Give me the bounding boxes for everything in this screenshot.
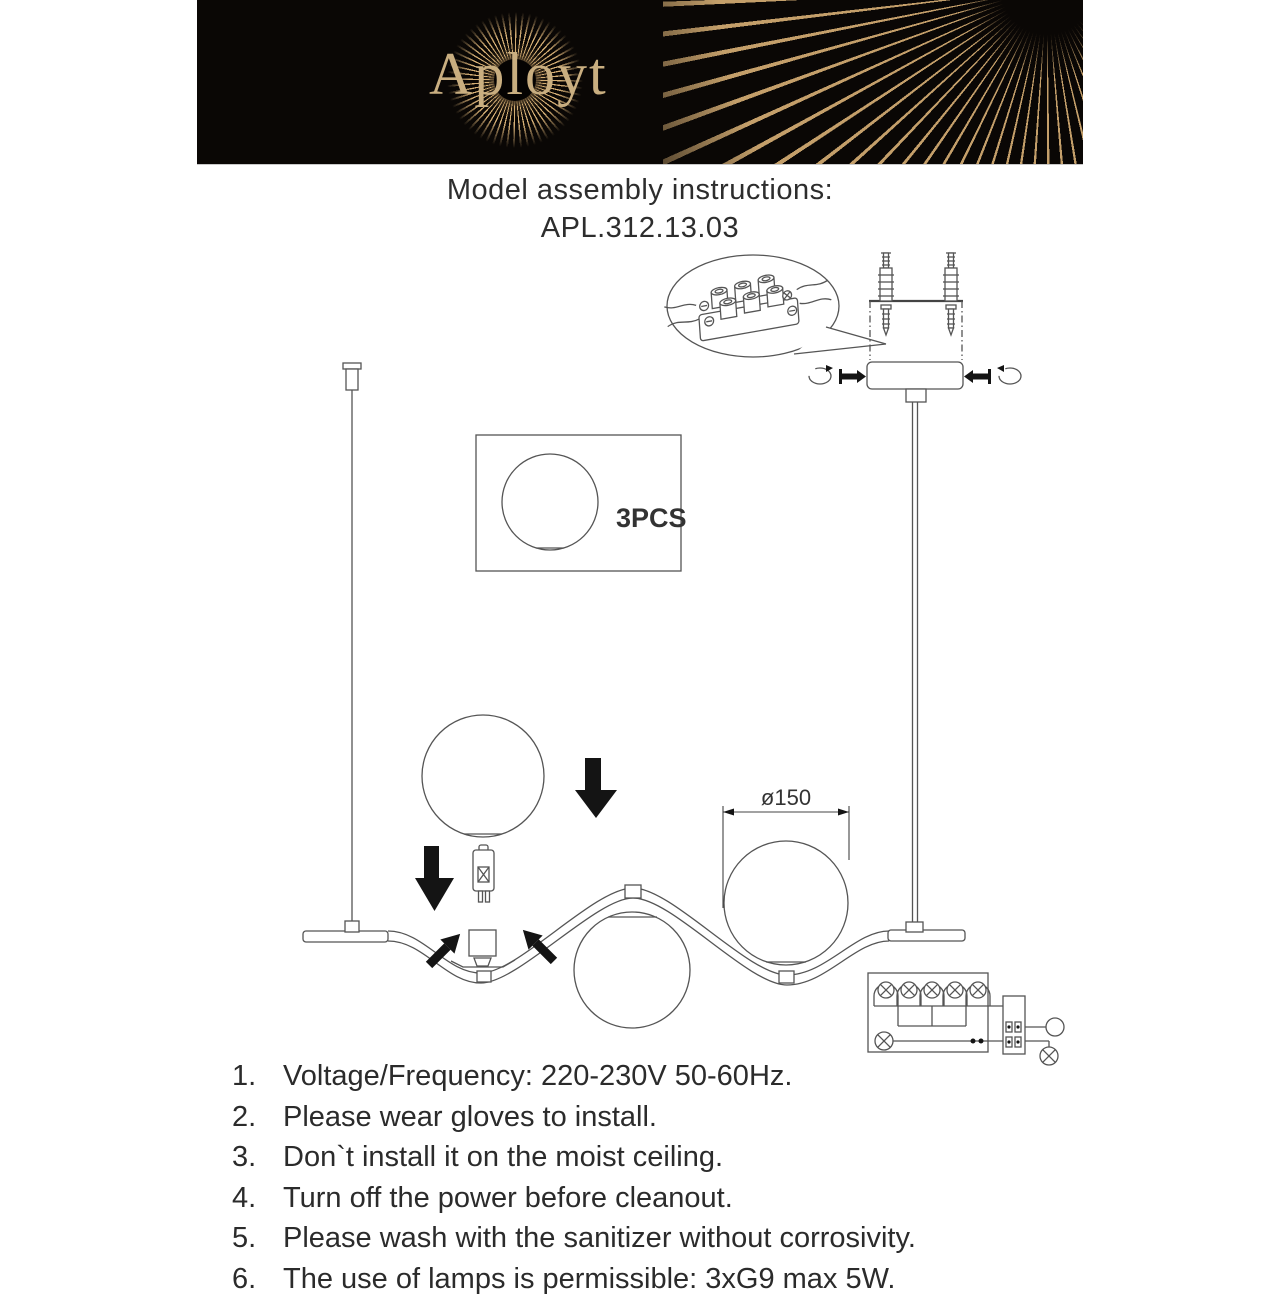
parts-box: 3PCS xyxy=(476,435,687,571)
diameter-label: ø150 xyxy=(761,785,811,810)
glass-sphere-icon xyxy=(724,841,848,965)
valley-connector xyxy=(477,971,491,982)
side-screw-icon xyxy=(964,365,1021,384)
terminal-block-callout xyxy=(663,255,886,357)
right-bar-end xyxy=(888,930,965,941)
glass-sphere-icon xyxy=(422,715,544,837)
item-text: The use of lamps is permissible: 3xG9 ma… xyxy=(283,1259,1092,1299)
wire-connector xyxy=(345,921,359,932)
wall-anchor-icon xyxy=(878,253,894,301)
item-number: 2. xyxy=(232,1097,283,1138)
wiring-diagram xyxy=(868,973,1064,1065)
glass-sphere-icon xyxy=(574,912,690,1028)
item-number: 5. xyxy=(232,1218,283,1259)
down-arrow-icon xyxy=(415,846,454,911)
up-left-arrow-icon xyxy=(516,923,561,968)
instruction-item: 5. Please wash with the sanitizer withou… xyxy=(232,1218,1092,1259)
item-number: 6. xyxy=(232,1259,283,1299)
item-text: Voltage/Frequency: 220-230V 50-60Hz. xyxy=(283,1056,1092,1097)
canopy-diagram xyxy=(809,362,1021,922)
instruction-item: 1. Voltage/Frequency: 220-230V 50-60Hz. xyxy=(232,1056,1092,1097)
screw-icon xyxy=(946,305,956,335)
item-number: 1. xyxy=(232,1056,283,1097)
left-bar-end xyxy=(303,931,388,942)
wall-anchor-icon xyxy=(943,253,959,301)
instruction-item: 6. The use of lamps is permissible: 3xG9… xyxy=(232,1259,1092,1299)
down-arrow-icon xyxy=(575,758,617,818)
rod-connector xyxy=(906,922,923,932)
item-number: 3. xyxy=(232,1137,283,1178)
parts-count-label: 3PCS xyxy=(616,503,687,533)
left-pendant-wire xyxy=(343,363,361,921)
wire-nut-icon xyxy=(1046,1018,1064,1036)
g9-bulb-icon xyxy=(473,845,494,902)
item-text: Turn off the power before cleanout. xyxy=(283,1178,1092,1219)
valley-connector xyxy=(779,971,794,983)
instruction-item: 3. Don`t install it on the moist ceiling… xyxy=(232,1137,1092,1178)
instruction-sheet: { "header": { "brand": "Aployt" }, "titl… xyxy=(0,0,1280,1280)
hump-connector xyxy=(625,885,641,898)
socket-holder-icon xyxy=(451,930,515,967)
item-text: Please wear gloves to install. xyxy=(283,1097,1092,1138)
lamp-symbols xyxy=(874,982,990,1006)
right-glass-sphere: ø150 xyxy=(723,785,849,965)
item-text: Please wash with the sanitizer without c… xyxy=(283,1218,1092,1259)
glass-sphere-icon xyxy=(502,454,598,550)
item-number: 4. xyxy=(232,1178,283,1219)
side-screw-icon xyxy=(809,365,866,384)
instruction-item: 2. Please wear gloves to install. xyxy=(232,1097,1092,1138)
screw-icon xyxy=(881,305,891,335)
instruction-item: 4. Turn off the power before cleanout. xyxy=(232,1178,1092,1219)
instructions-list: 1. Voltage/Frequency: 220-230V 50-60Hz. … xyxy=(232,1056,1092,1299)
ceiling-mount-diagram xyxy=(663,253,1021,922)
item-text: Don`t install it on the moist ceiling. xyxy=(283,1137,1092,1178)
middle-glass-sphere xyxy=(574,912,690,1028)
